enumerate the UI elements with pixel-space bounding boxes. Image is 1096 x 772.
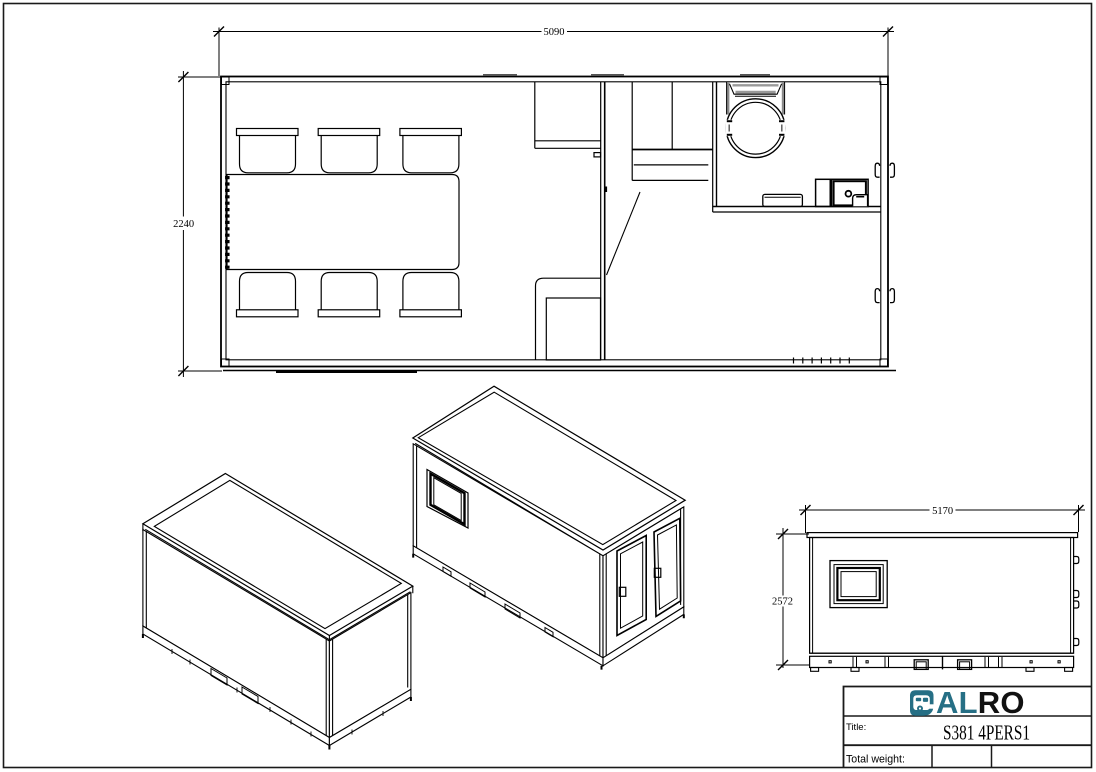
- svg-text:5170: 5170: [932, 506, 953, 517]
- svg-text:ALRO: ALRO: [936, 685, 1025, 720]
- svg-text:2572: 2572: [772, 596, 793, 607]
- svg-text:5090: 5090: [544, 27, 565, 38]
- svg-text:Total weight:: Total weight:: [846, 754, 905, 766]
- svg-text:S381 4PERS1: S381 4PERS1: [943, 721, 1030, 745]
- svg-text:2240: 2240: [173, 219, 194, 230]
- svg-text:Title:: Title:: [846, 722, 866, 733]
